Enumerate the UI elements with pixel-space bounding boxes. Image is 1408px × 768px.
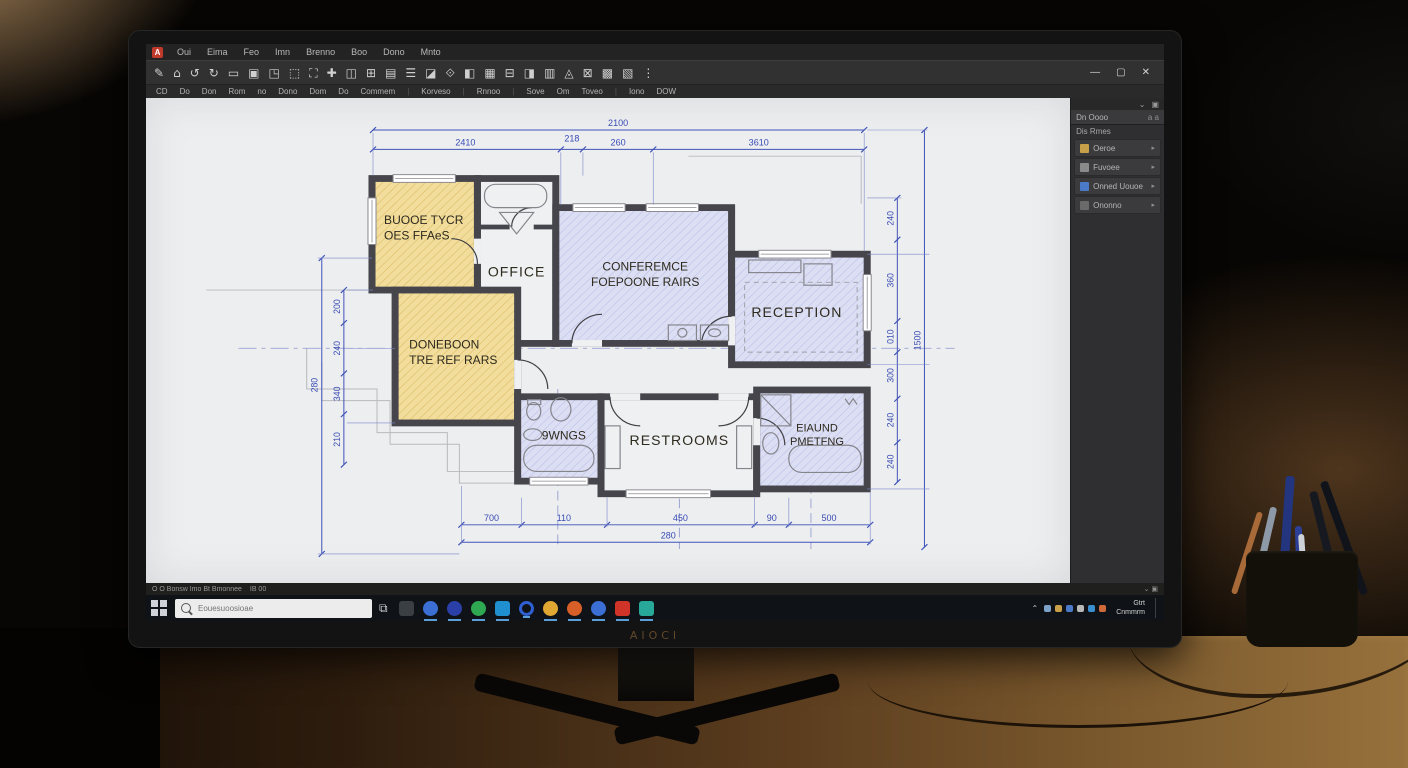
toolbar-icon[interactable]: ▧	[622, 66, 633, 80]
toolbar-icon[interactable]: ◧	[464, 66, 475, 80]
toolbar-label[interactable]: Do	[180, 87, 190, 96]
taskbar-search[interactable]	[175, 599, 372, 618]
search-input[interactable]	[196, 603, 340, 614]
menu-item[interactable]: Mnto	[421, 47, 441, 57]
toolbar-icon[interactable]: ↺	[190, 66, 200, 80]
panel-item[interactable]: Fuvoee▸	[1074, 158, 1161, 176]
toolbar-separator: |	[463, 87, 465, 96]
svg-text:210: 210	[332, 432, 342, 447]
svg-text:360: 360	[885, 273, 895, 288]
room-label: EIAUND	[796, 423, 838, 435]
toolbar-label[interactable]: Dono	[278, 87, 297, 96]
layer-color-chip	[1080, 201, 1089, 210]
desk-dark-object	[0, 628, 160, 768]
toolbar-label[interactable]: no	[257, 87, 266, 96]
room-label: 9WNGS	[542, 429, 586, 443]
tray-icon[interactable]	[1055, 605, 1062, 612]
svg-text:240: 240	[885, 413, 895, 428]
tray-icon[interactable]	[1099, 605, 1106, 612]
toolbar-icon[interactable]: ⬚	[289, 66, 300, 80]
taskbar-clock[interactable]: Gtrt Cnmmrm	[1112, 599, 1149, 618]
taskbar-app-icon[interactable]	[423, 601, 438, 616]
dimension-right: 240 360 010 300 240 240 1500	[867, 127, 929, 550]
toolbar-icon[interactable]: ⊠	[583, 66, 593, 80]
taskbar-app-icon[interactable]	[519, 601, 534, 616]
svg-text:300: 300	[885, 368, 895, 383]
drawing-canvas[interactable]: BUOOE TYCR OES FFAeS OFFICE CONFEREMCE F…	[146, 98, 1070, 583]
task-view-icon[interactable]: ⧉	[379, 601, 388, 616]
monitor-brand: AIOCI	[129, 629, 1181, 642]
svg-text:280: 280	[310, 378, 320, 393]
panel-title-icons[interactable]: a a	[1148, 113, 1159, 122]
room-label: RECEPTION	[751, 304, 842, 320]
toolbar-label[interactable]: Do	[338, 87, 348, 96]
taskbar-app-icon[interactable]	[399, 601, 414, 616]
running-indicator	[640, 619, 653, 621]
room-label: CONFEREMCE	[602, 260, 688, 274]
screen: A OuiEimaFeoImnBrennoBooDonoMnto ✎⌂↺↻▭▣◳…	[146, 44, 1164, 621]
toolbar-icon[interactable]: ▦	[484, 66, 495, 80]
pen-cup-body	[1246, 551, 1358, 647]
room-label: OES FFAeS	[384, 229, 450, 243]
close-button[interactable]: ✕	[1142, 67, 1150, 78]
monitor-stand	[618, 645, 694, 701]
svg-text:110: 110	[557, 513, 571, 523]
panel-item-label: Onned Uouoe	[1093, 182, 1143, 191]
properties-panel: ⌄ ▣ Dn Oooo a a Dis Rmes Oeroe▸Fuvoee▸On…	[1070, 98, 1164, 583]
running-indicator	[523, 616, 530, 618]
toolbar-icon[interactable]: ⊞	[366, 66, 376, 80]
layer-color-chip	[1080, 182, 1089, 191]
toolbar-icon[interactable]: ✎	[154, 66, 164, 80]
panel-item[interactable]: Ononno▸	[1074, 196, 1161, 214]
menu-item[interactable]: Oui	[177, 47, 191, 57]
running-indicator	[472, 619, 485, 621]
running-indicator	[544, 619, 557, 621]
app-statusbar: O O Bonsw Imo Bt Bmonnee IB 00 ⌄ ▣	[146, 583, 1164, 595]
toolbar-icon[interactable]: ▤	[385, 66, 396, 80]
chevron-right-icon[interactable]: ▸	[1151, 201, 1155, 209]
cable	[868, 635, 1288, 728]
tray-icon[interactable]	[1088, 605, 1095, 612]
running-indicator	[616, 619, 629, 621]
svg-text:200: 200	[332, 299, 342, 314]
tray-chevron-icon[interactable]: ⌃	[1032, 604, 1039, 613]
running-indicator	[592, 619, 605, 621]
svg-text:3610: 3610	[749, 138, 769, 148]
toolbar-icon[interactable]: ◫	[346, 66, 357, 80]
panel-dock-icon[interactable]: ▣	[1151, 100, 1159, 109]
panel-subtitle: Dis Rmes	[1071, 125, 1164, 138]
svg-text:1500: 1500	[912, 331, 922, 350]
toolbar-icon[interactable]: ⛶	[309, 66, 317, 80]
menu-item[interactable]: Eima	[207, 47, 228, 57]
toolbar-icon[interactable]: ▭	[228, 66, 239, 80]
chevron-right-icon[interactable]: ▸	[1151, 144, 1155, 152]
toolbar-icon[interactable]: ◬	[564, 66, 573, 80]
toolbar-label[interactable]: DOW	[657, 87, 677, 96]
taskbar-app-icon[interactable]	[591, 601, 606, 616]
panel-collapse-icon[interactable]: ⌄	[1139, 100, 1146, 109]
taskbar-app-icon[interactable]	[471, 601, 486, 616]
svg-text:240: 240	[332, 341, 342, 356]
toolbar-icon[interactable]: ☰	[405, 66, 416, 80]
panel-title: Dn Oooo	[1076, 113, 1108, 122]
running-indicator	[448, 619, 461, 621]
layer-color-chip	[1080, 144, 1089, 153]
room-label: PMETFNG	[790, 436, 844, 448]
chevron-right-icon[interactable]: ▸	[1151, 163, 1155, 171]
toolbar-separator: |	[407, 87, 409, 96]
panel-item-label: Ononno	[1093, 201, 1121, 210]
toolbar-icon[interactable]: ✚	[327, 66, 337, 80]
construction-line	[688, 156, 861, 204]
toolbar-label[interactable]: Rnnoo	[477, 87, 501, 96]
toolbar-label[interactable]: Korveso	[421, 87, 450, 96]
toolbar-icon[interactable]: ⋮	[642, 66, 654, 80]
toolbar-icon[interactable]: ⌂	[173, 66, 181, 80]
toolbar-icon[interactable]: ↻	[209, 66, 219, 80]
room-label: RESTROOMS	[630, 432, 730, 448]
svg-text:2100: 2100	[608, 118, 628, 128]
room-label: BUOOE TYCR	[384, 213, 463, 227]
panel-item-label: Fuvoee	[1093, 163, 1120, 172]
panel-item[interactable]: Onned Uouoe▸	[1074, 177, 1161, 195]
toolbar-icon[interactable]: ⊟	[505, 66, 515, 80]
statusbar-counters: IB 00	[250, 586, 266, 593]
toolbar-label[interactable]: CD	[156, 87, 168, 96]
toolbar-label[interactable]: Dom	[309, 87, 326, 96]
toolbar-separator: |	[512, 87, 514, 96]
menu-item[interactable]: Dono	[383, 47, 405, 57]
tray-icon[interactable]	[1044, 605, 1051, 612]
toolbar-label[interactable]: Om	[557, 87, 570, 96]
toolbar-icon[interactable]: ⟐	[446, 66, 455, 80]
running-indicator	[424, 619, 437, 621]
svg-text:280: 280	[661, 531, 676, 541]
room-label: FOEPOONE RAIRS	[591, 275, 699, 289]
toolbar-label[interactable]: Sove	[526, 87, 544, 96]
minimize-button[interactable]: —	[1090, 67, 1100, 78]
start-button[interactable]	[150, 599, 168, 617]
svg-text:700: 700	[484, 513, 499, 523]
menu-item[interactable]: Feo	[244, 47, 260, 57]
show-desktop-button[interactable]	[1155, 598, 1160, 618]
toolbar-icon[interactable]: ▣	[248, 66, 259, 80]
running-indicator	[496, 619, 509, 621]
panel-item-label: Oeroe	[1093, 144, 1115, 153]
monitor: A OuiEimaFeoImnBrennoBooDonoMnto ✎⌂↺↻▭▣◳…	[128, 30, 1182, 648]
toolbar-icon[interactable]: ◪	[425, 66, 436, 80]
svg-text:260: 260	[611, 138, 626, 148]
toolbar-label[interactable]: Rom	[228, 87, 245, 96]
taskbar-app-icon[interactable]	[543, 601, 558, 616]
menu-item[interactable]: Boo	[351, 47, 367, 57]
taskbar-app-icon[interactable]	[615, 601, 630, 616]
taskbar-app-icon[interactable]	[639, 601, 654, 616]
statusbar-text: O O Bonsw Imo Bt Bmonnee	[152, 586, 242, 593]
pen-cup	[1238, 462, 1368, 647]
svg-text:2410: 2410	[455, 138, 475, 148]
maximize-button[interactable]: ▢	[1116, 67, 1125, 78]
taskbar-app-icon[interactable]	[447, 601, 462, 616]
toolbar-icon[interactable]: ▥	[544, 66, 555, 80]
chevron-right-icon[interactable]: ▸	[1151, 182, 1155, 190]
toolbar-icon[interactable]: ◳	[269, 66, 280, 80]
room-label: TRE REF RARS	[409, 353, 497, 367]
toolbar-icon[interactable]: ▩	[602, 66, 613, 80]
app-menubar: A OuiEimaFeoImnBrennoBooDonoMnto	[146, 44, 1164, 60]
svg-text:218: 218	[564, 134, 579, 144]
system-tray: ⌃ Gtrt Cnmmrm	[1032, 598, 1160, 618]
svg-text:240: 240	[885, 454, 895, 469]
panel-item[interactable]: Oeroe▸	[1074, 139, 1161, 157]
toolbar-icon[interactable]: ◨	[524, 66, 535, 80]
svg-text:010: 010	[885, 329, 895, 344]
taskbar: ⧉ ⌃ Gtrt Cnmmrm	[146, 595, 1164, 621]
app-toolbar: ✎⌂↺↻▭▣◳⬚⛶✚◫⊞▤☰◪⟐◧▦⊟◨▥◬⊠▩▧⋮ — ▢ ✕	[146, 60, 1164, 84]
floor-plan: BUOOE TYCR OES FFAeS OFFICE CONFEREMCE F…	[146, 98, 1070, 583]
toolbar-separator: |	[615, 87, 617, 96]
svg-text:240: 240	[885, 211, 895, 226]
menu-item[interactable]: Brenno	[306, 47, 335, 57]
toolbar-label[interactable]: Commem	[361, 87, 396, 96]
room-label: DONEBOON	[409, 337, 479, 351]
svg-text:450: 450	[673, 513, 688, 523]
tray-icon[interactable]	[1077, 605, 1084, 612]
svg-text:90: 90	[767, 513, 777, 523]
room-label: OFFICE	[488, 264, 546, 280]
taskbar-app-icon[interactable]	[495, 601, 510, 616]
tray-icon[interactable]	[1066, 605, 1073, 612]
cad-app-icon[interactable]: A	[152, 47, 163, 58]
search-icon	[181, 603, 191, 613]
svg-text:340: 340	[332, 387, 342, 402]
taskbar-app-icon[interactable]	[567, 601, 582, 616]
svg-text:500: 500	[821, 513, 836, 523]
toolbar-label[interactable]: Iono	[629, 87, 645, 96]
toolbar-label[interactable]: Toveo	[582, 87, 603, 96]
menu-item[interactable]: Imn	[275, 47, 290, 57]
toolbar-label-row: CDDoDonRomnoDonoDomDoCommem|Korveso|Rnno…	[146, 84, 1164, 98]
toolbar-label[interactable]: Don	[202, 87, 217, 96]
statusbar-icons[interactable]: ⌄ ▣	[1144, 585, 1158, 593]
running-indicator	[568, 619, 581, 621]
layer-color-chip	[1080, 163, 1089, 172]
